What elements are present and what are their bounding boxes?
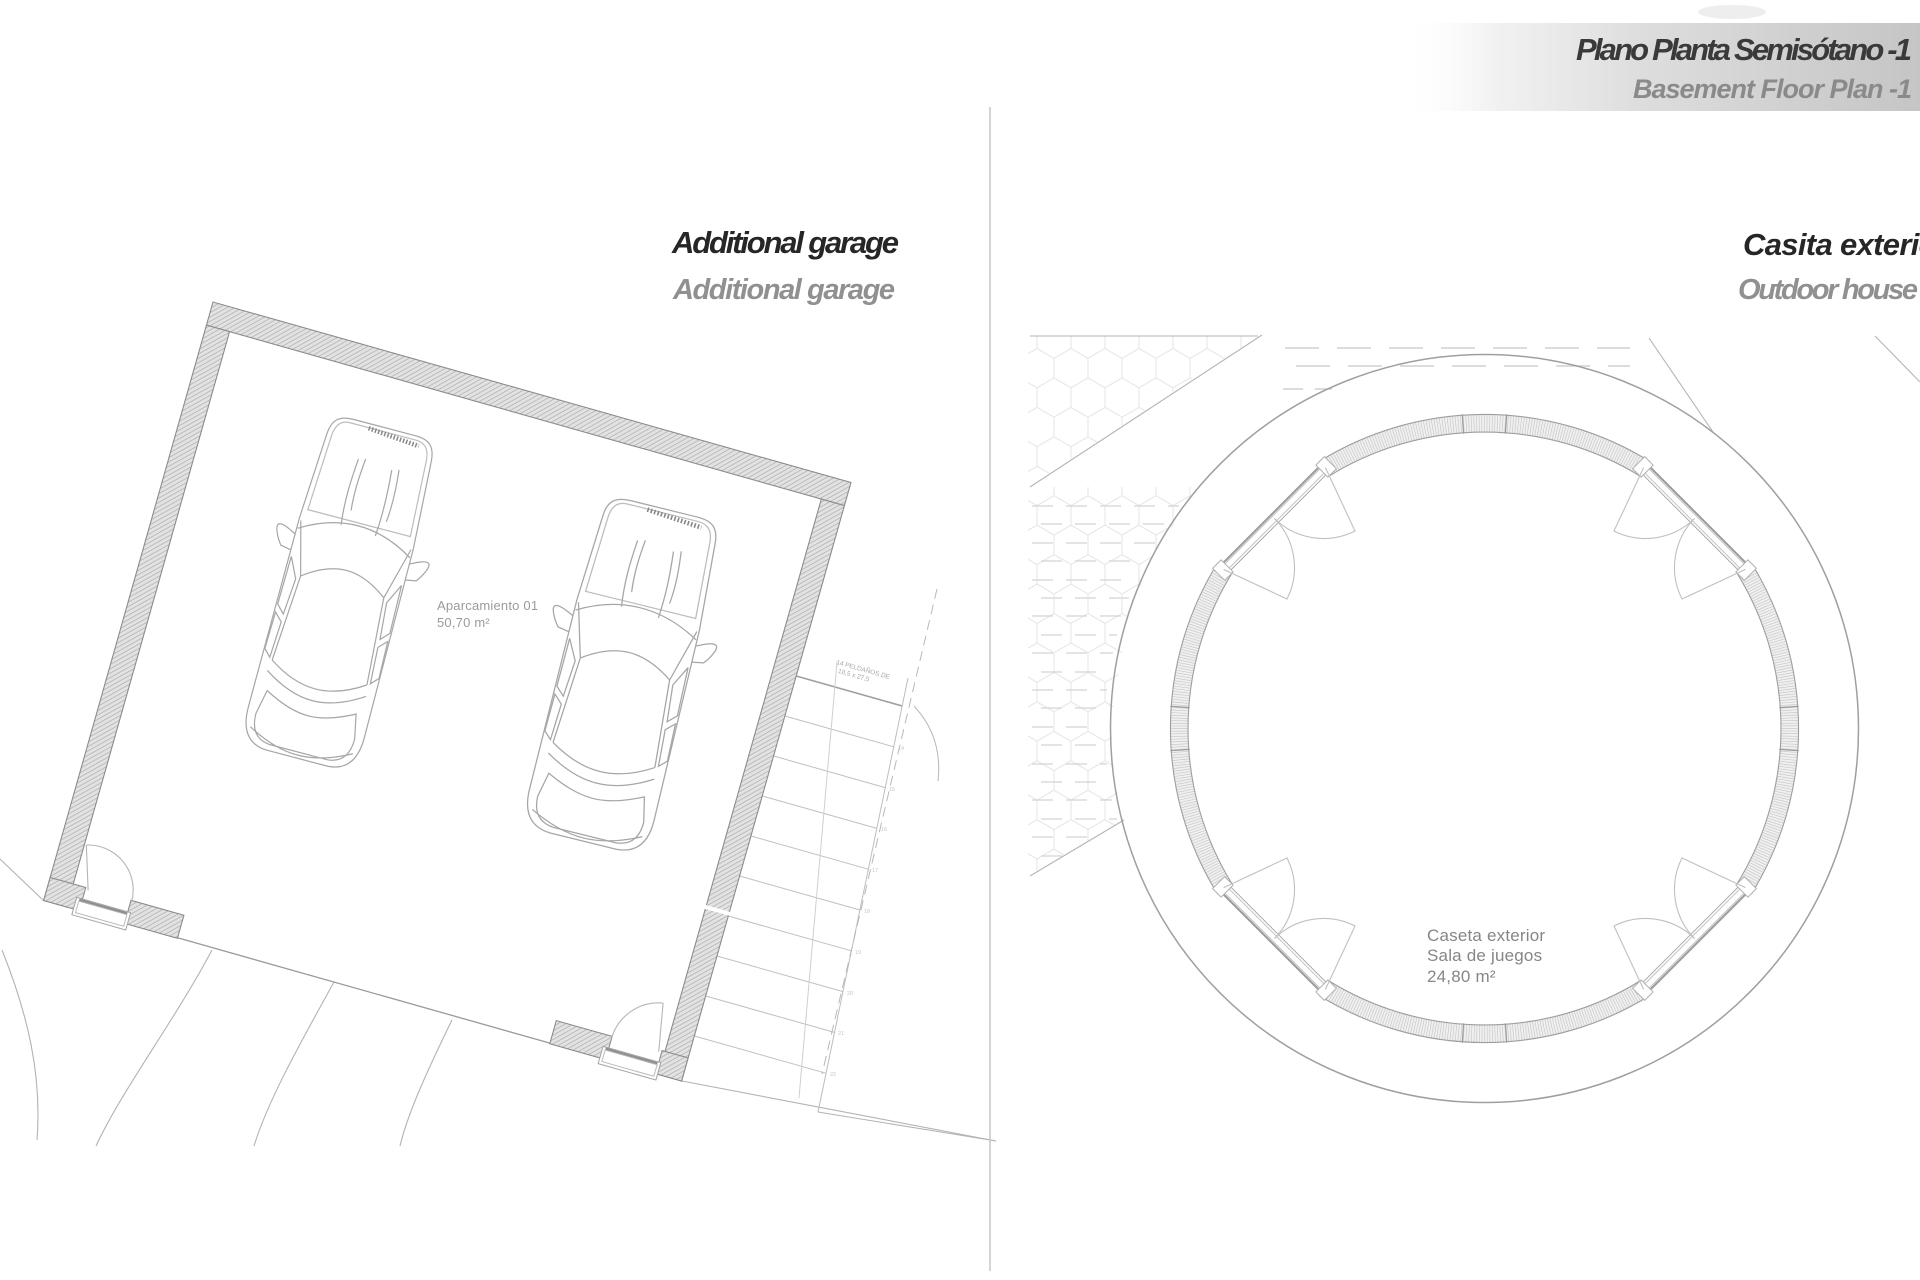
svg-text:Casita exterior: Casita exterior [1743,227,1920,262]
svg-text:50,70 m²: 50,70 m² [437,615,490,630]
svg-text:21: 21 [838,1031,844,1037]
svg-text:16: 16 [881,827,887,833]
svg-text:22: 22 [830,1072,836,1078]
svg-text:17: 17 [872,868,878,874]
svg-text:15: 15 [889,787,895,793]
svg-text:Outdoor house: Outdoor house [1738,274,1918,306]
svg-text:18: 18 [864,909,870,915]
svg-text:Sala de juegos: Sala de juegos [1427,946,1542,965]
svg-text:Additional garage: Additional garage [671,225,899,260]
svg-text:Additional garage: Additional garage [672,274,895,306]
svg-text:19: 19 [855,950,861,956]
svg-text:Plano Planta Semisótano -1: Plano Planta Semisótano -1 [1576,32,1912,67]
svg-text:Caseta exterior: Caseta exterior [1427,926,1545,945]
svg-text:20: 20 [847,991,853,997]
svg-text:24,80 m²: 24,80 m² [1427,967,1496,986]
svg-text:14: 14 [898,746,904,752]
svg-text:Basement Floor Plan -1: Basement Floor Plan -1 [1633,74,1912,104]
svg-text:Aparcamiento 01: Aparcamiento 01 [437,598,538,613]
